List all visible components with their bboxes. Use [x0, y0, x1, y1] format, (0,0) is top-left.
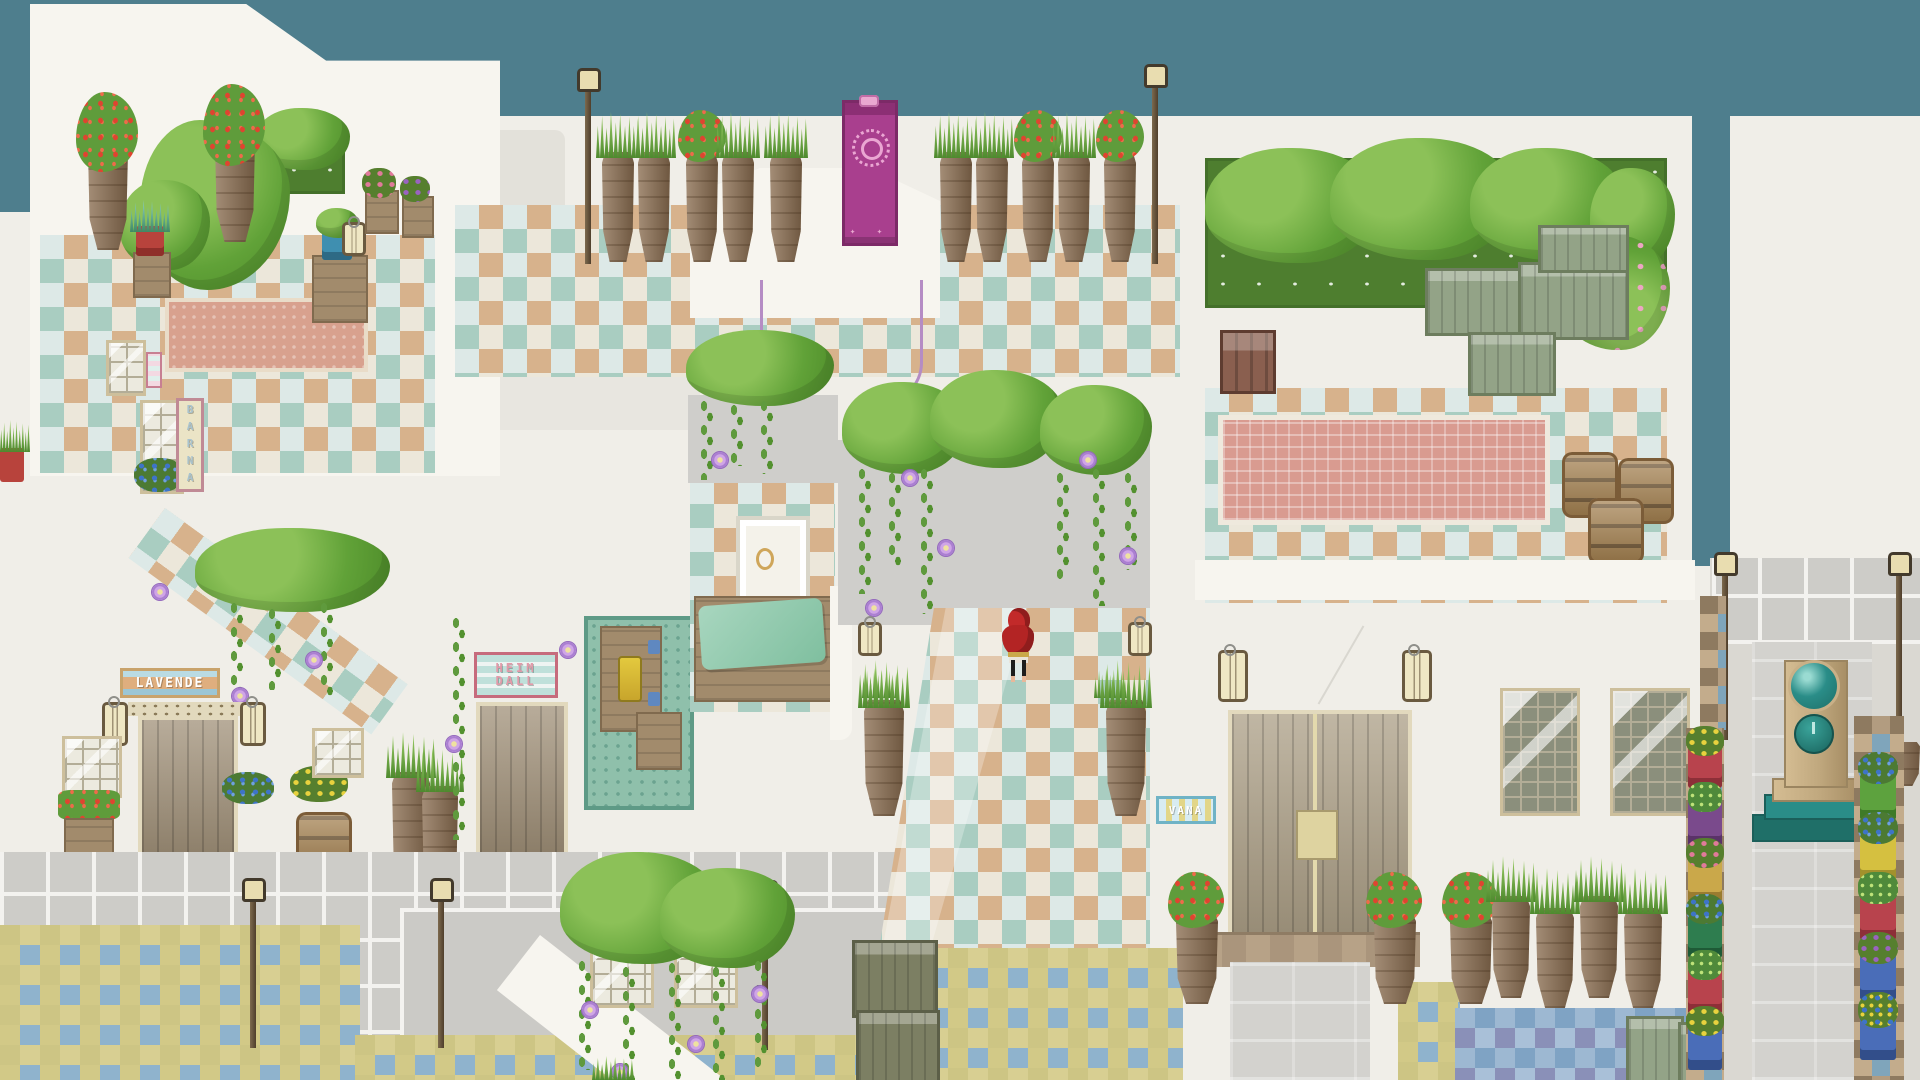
crate — [856, 1010, 940, 1080]
cactus — [1858, 872, 1898, 904]
hanging-vine — [858, 466, 872, 594]
mini-shop-sign — [146, 352, 162, 388]
hanging-vine — [760, 398, 774, 474]
heimdall-sign-line2: DALL — [496, 675, 537, 688]
morning-glory — [1080, 452, 1096, 468]
hanging-vine — [888, 470, 902, 566]
door-handle-plate — [1296, 810, 1338, 860]
planter — [722, 152, 754, 262]
morning-glory — [866, 600, 882, 616]
hanging-vine — [754, 958, 768, 1068]
plaza-tiles — [0, 925, 360, 1080]
red-pot — [0, 448, 24, 482]
morning-glory — [712, 452, 728, 468]
courtyard-wall — [1195, 560, 1695, 600]
planter — [940, 152, 972, 262]
hanging-vine — [920, 466, 934, 614]
morning-glory — [688, 1036, 704, 1052]
hanging-vine — [452, 615, 466, 840]
morning-glory — [902, 470, 918, 486]
plant-stool — [402, 196, 434, 238]
wall-lantern-icon — [858, 622, 882, 656]
planter — [1106, 700, 1146, 816]
blue-cup — [648, 640, 660, 654]
flowers — [1686, 894, 1724, 924]
street-lamp-icon — [250, 898, 256, 1048]
chair[interactable] — [636, 712, 682, 770]
planter — [1580, 896, 1618, 998]
hanging-vine — [1056, 470, 1070, 580]
plant-stool — [133, 252, 171, 298]
storage-chest[interactable] — [1220, 330, 1276, 394]
wall-lantern-icon — [342, 222, 366, 256]
oil-bottle — [618, 656, 642, 702]
shuttered-window — [1610, 688, 1690, 816]
wall-lantern-icon — [1128, 622, 1152, 656]
flowers — [1686, 838, 1724, 868]
morning-glory — [752, 986, 768, 1002]
morning-glory — [446, 736, 462, 752]
flowers — [1858, 812, 1898, 844]
crate — [1425, 268, 1526, 336]
teal-bed[interactable] — [698, 598, 826, 670]
street-lamp-icon — [438, 898, 444, 1048]
hanging-vine — [1092, 466, 1106, 606]
sea-gap — [1692, 116, 1730, 566]
hanging-vine — [730, 402, 744, 466]
planter — [770, 152, 802, 262]
vine-bush — [660, 868, 795, 968]
planter — [1624, 908, 1662, 1008]
vine-canopy — [686, 330, 834, 406]
hanging-vine — [712, 964, 726, 1080]
hanging-vine — [320, 600, 334, 696]
pink-flower-pot — [362, 168, 396, 198]
morning-glory — [560, 642, 576, 658]
blue-flowerbed — [222, 772, 274, 804]
street-lamp-icon — [1896, 572, 1902, 740]
planter — [864, 700, 904, 816]
flowers — [1686, 1006, 1724, 1036]
planter — [686, 152, 718, 262]
planter — [1104, 152, 1136, 262]
hanging-vine — [700, 398, 714, 480]
red-flowerbox — [58, 790, 120, 820]
banner-sigils: ✦ ✦ — [845, 227, 895, 237]
crate — [1518, 262, 1629, 340]
morning-glory — [582, 1002, 598, 1018]
heimdall-shop-sign: HEIM DALL — [474, 652, 558, 698]
hanging-vine — [230, 600, 244, 700]
morning-glory — [1120, 548, 1136, 564]
sea-inlet — [0, 116, 30, 212]
planter — [1058, 152, 1090, 262]
planter — [638, 152, 670, 262]
morning-glory — [152, 584, 168, 600]
planter — [1536, 908, 1574, 1008]
barrel[interactable] — [1588, 498, 1644, 564]
banner-knob — [859, 95, 879, 107]
wall-lantern-icon — [240, 702, 266, 746]
window — [312, 728, 364, 778]
dresser[interactable] — [312, 255, 368, 323]
crate — [1626, 1016, 1684, 1080]
vine-canopy — [1040, 385, 1152, 475]
purple-flower-pot — [400, 176, 430, 202]
door-lintel — [128, 702, 244, 716]
shrine-banner[interactable]: ✦ ✦ — [842, 100, 898, 246]
vine-bush — [195, 528, 390, 612]
planter — [1022, 152, 1054, 262]
lavende-shop-sign: LAVENDE — [120, 668, 220, 698]
leg — [1022, 660, 1026, 677]
planter — [602, 152, 634, 262]
wall-lantern-icon — [1402, 650, 1432, 702]
street-lamp-icon — [1152, 84, 1158, 264]
leg — [1011, 660, 1015, 677]
shuttered-window — [1500, 688, 1580, 816]
sun-face-icon — [852, 129, 890, 167]
clock-face-icon — [1794, 714, 1834, 754]
blue-cup — [648, 692, 660, 706]
hanging-vine — [268, 606, 282, 690]
wall-lantern-icon — [1218, 650, 1248, 702]
vertical-shop-sign: BARNA — [176, 398, 204, 492]
hanging-vine — [668, 960, 682, 1080]
window — [106, 340, 146, 396]
planter — [1492, 896, 1530, 998]
foot — [1022, 676, 1026, 682]
planter — [976, 152, 1008, 262]
crate — [852, 940, 938, 1018]
crate — [1538, 225, 1629, 273]
game-viewport: BARNA LAVENDE HEIM DALL — [0, 0, 1920, 1080]
flowers — [1858, 752, 1898, 784]
heimdall-door[interactable] — [476, 702, 568, 852]
cactus — [1688, 782, 1722, 812]
flowers — [1686, 726, 1724, 756]
morning-glory — [306, 652, 322, 668]
vana-shop-sign: VANA — [1156, 796, 1216, 824]
morning-glory — [938, 540, 954, 556]
stone-path — [1230, 962, 1370, 1080]
teal-globe-icon — [1788, 660, 1840, 712]
street-lamp-icon — [585, 88, 591, 264]
door-ring-handle — [756, 548, 774, 570]
brick-terrace — [1218, 415, 1550, 525]
player-character[interactable] — [1000, 608, 1036, 682]
flowers — [1858, 992, 1898, 1028]
window — [62, 736, 122, 798]
foot — [1011, 676, 1015, 682]
crate-gate — [1468, 332, 1556, 396]
flowers — [1858, 932, 1898, 964]
tile-strip — [1700, 596, 1726, 730]
cactus — [1688, 950, 1722, 980]
